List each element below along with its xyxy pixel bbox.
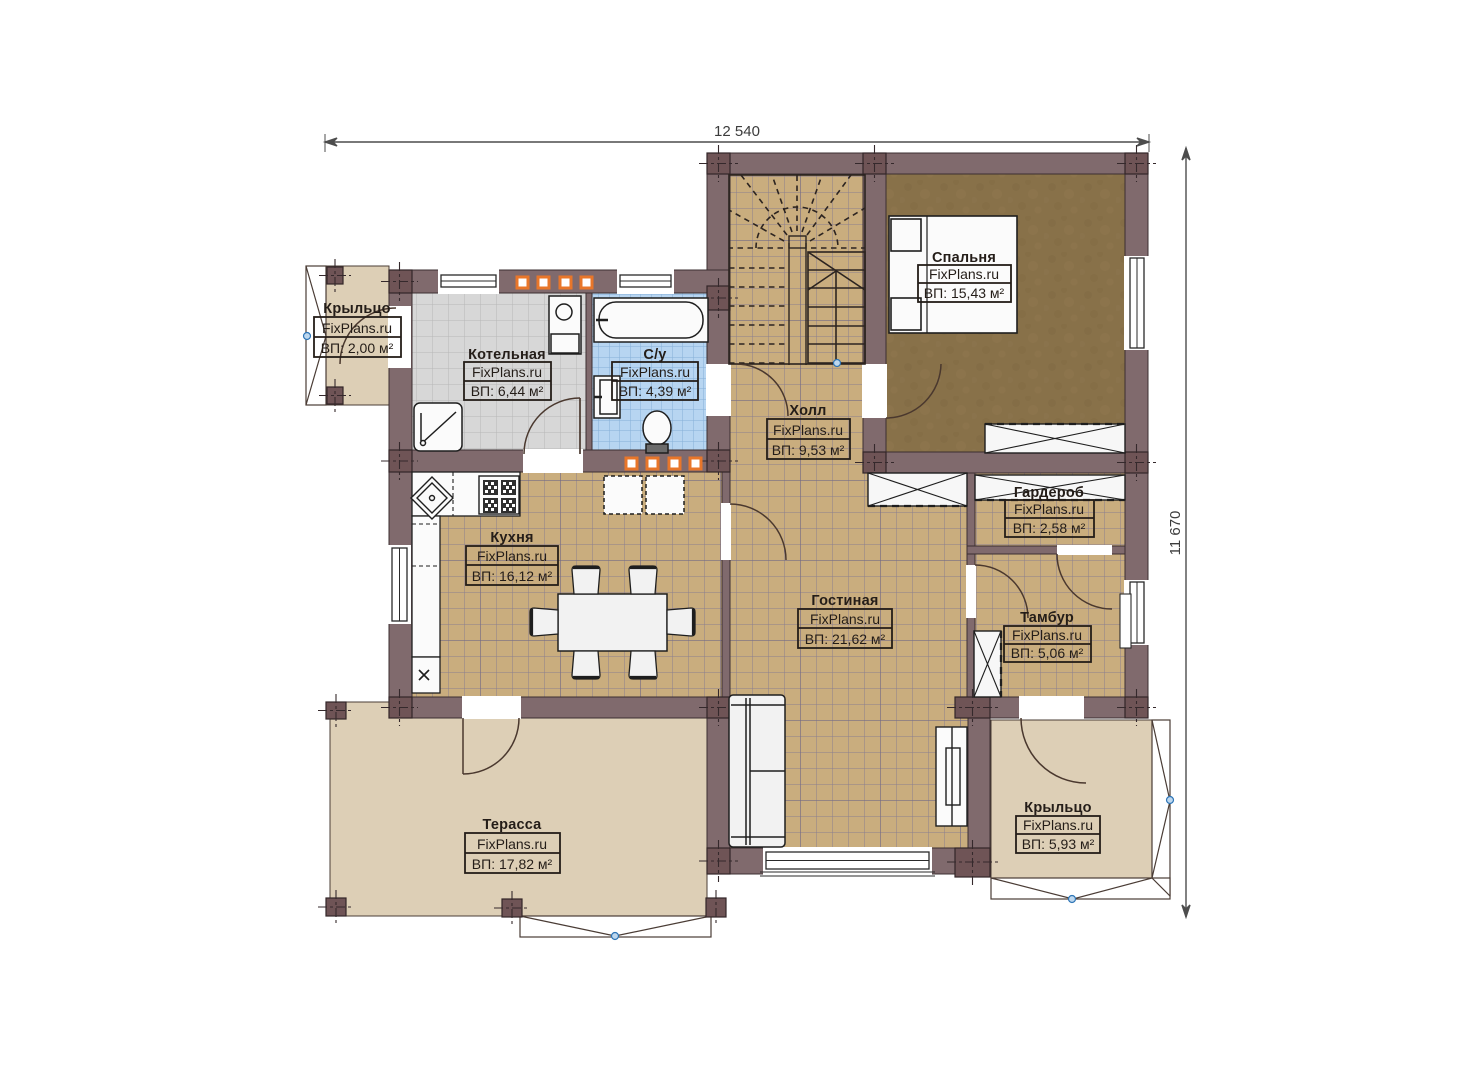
svg-text:ВП: 16,12 м²: ВП: 16,12 м² [472,568,553,584]
svg-text:Гардероб: Гардероб [1014,485,1084,501]
svg-text:ВП: 5,93 м²: ВП: 5,93 м² [1022,836,1095,852]
svg-text:ВП: 6,44 м²: ВП: 6,44 м² [471,383,544,399]
svg-text:ВП: 9,53 м²: ВП: 9,53 м² [772,442,845,458]
svg-text:FixPlans.ru: FixPlans.ru [929,266,999,282]
svg-text:ВП: 5,06 м²: ВП: 5,06 м² [1011,645,1084,661]
svg-text:ВП: 17,82 м²: ВП: 17,82 м² [472,856,553,872]
svg-text:FixPlans.ru: FixPlans.ru [477,836,547,852]
svg-text:FixPlans.ru: FixPlans.ru [620,364,690,380]
svg-text:ВП: 15,43 м²: ВП: 15,43 м² [924,285,1005,301]
svg-text:FixPlans.ru: FixPlans.ru [322,320,392,336]
svg-text:FixPlans.ru: FixPlans.ru [472,364,542,380]
svg-text:С/у: С/у [643,347,666,363]
svg-text:ВП: 2,58 м²: ВП: 2,58 м² [1013,520,1086,536]
svg-text:ВП: 21,62 м²: ВП: 21,62 м² [805,631,886,647]
svg-text:Тамбур: Тамбур [1020,610,1074,626]
svg-text:FixPlans.ru: FixPlans.ru [1014,501,1084,517]
svg-text:11 670: 11 670 [1167,511,1184,556]
svg-text:Кухня: Кухня [490,530,533,546]
svg-text:Холл: Холл [789,403,826,419]
svg-text:FixPlans.ru: FixPlans.ru [810,611,880,627]
svg-text:FixPlans.ru: FixPlans.ru [1012,627,1082,643]
svg-text:Гостиная: Гостиная [811,593,878,609]
svg-text:12 540: 12 540 [714,123,760,140]
svg-text:ВП: 2,00 м²: ВП: 2,00 м² [321,340,394,356]
svg-text:Крыльцо: Крыльцо [323,301,390,317]
svg-text:FixPlans.ru: FixPlans.ru [773,422,843,438]
svg-text:Спальня: Спальня [932,250,996,266]
svg-text:Терасса: Терасса [483,817,543,833]
svg-text:Крыльцо: Крыльцо [1024,800,1091,816]
svg-text:ВП: 4,39 м²: ВП: 4,39 м² [619,383,692,399]
svg-text:FixPlans.ru: FixPlans.ru [477,548,547,564]
svg-text:Котельная: Котельная [468,347,546,363]
svg-text:FixPlans.ru: FixPlans.ru [1023,817,1093,833]
